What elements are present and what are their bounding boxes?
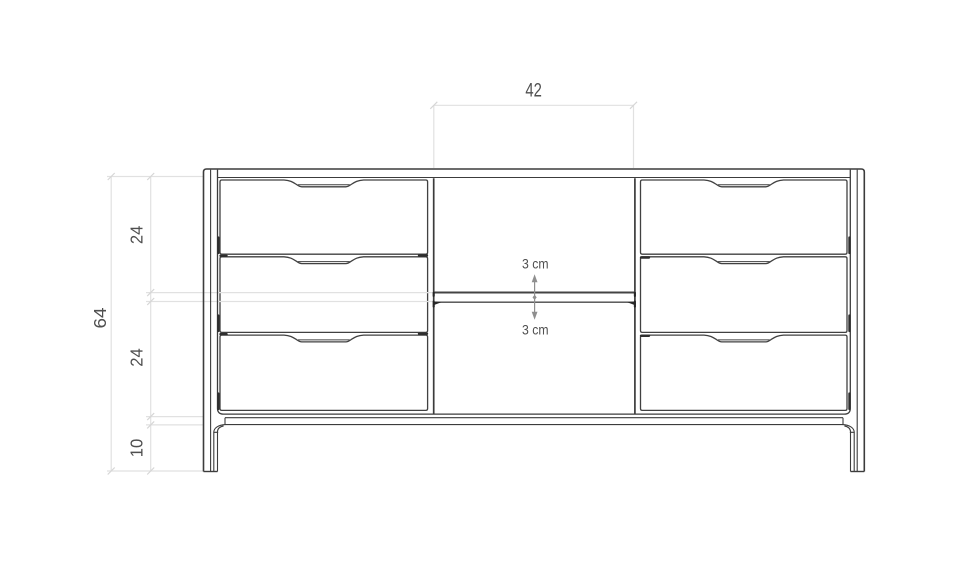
svg-text:10: 10 <box>127 438 147 457</box>
svg-text:64: 64 <box>90 307 110 328</box>
svg-text:24: 24 <box>127 348 147 367</box>
svg-text:24: 24 <box>127 225 147 244</box>
svg-text:42: 42 <box>525 80 542 102</box>
svg-text:3 cm: 3 cm <box>522 321 549 337</box>
svg-text:3 cm: 3 cm <box>522 255 549 271</box>
